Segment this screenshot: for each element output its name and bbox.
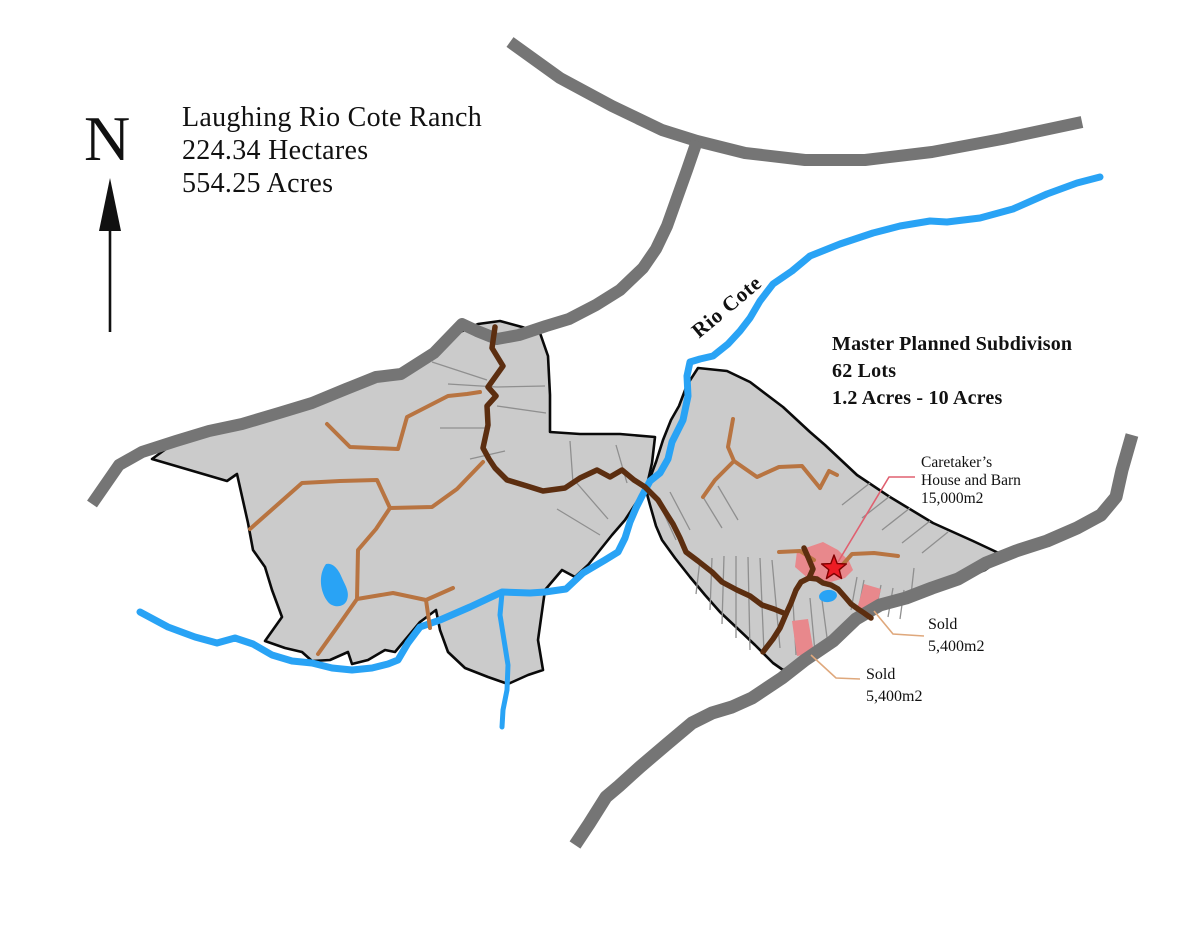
north-arrowhead: [99, 178, 121, 231]
north-arrow: N: [84, 103, 130, 332]
ranch-title-line3: 554.25 Acres: [182, 168, 333, 199]
ranch-title-line1: Laughing Rio Cote Ranch: [182, 102, 482, 133]
highway-north-road: [510, 42, 1082, 160]
caretaker-label-line1: Caretaker’s: [921, 454, 992, 471]
subdivision-line1: Master Planned Subdivison: [832, 333, 1072, 355]
caretaker-label-line3: 15,000m2: [921, 490, 983, 507]
sold-upper-leader-line: [874, 611, 924, 636]
sold-upper-label-line1: Sold: [928, 616, 957, 633]
caretaker-label: Caretaker’s House and Barn 15,000m2: [921, 454, 1021, 507]
caretaker-label-line2: House and Barn: [921, 472, 1021, 489]
sold-lower-label: Sold 5,400m2: [866, 666, 922, 705]
subdivision-block: Master Planned Subdivison 62 Lots 1.2 Ac…: [832, 333, 1072, 409]
ranch-title-block: Laughing Rio Cote Ranch 224.34 Hectares …: [182, 102, 482, 199]
north-label: N: [84, 103, 130, 174]
sold-lower-label-line2: 5,400m2: [866, 688, 922, 705]
subdivision-line3: 1.2 Acres - 10 Acres: [832, 387, 1002, 409]
sold-lower-label-line1: Sold: [866, 666, 895, 683]
ranch-title-line2: 224.34 Hectares: [182, 135, 368, 166]
sold-upper-label: Sold 5,400m2: [928, 616, 984, 655]
subdivision-line2: 62 Lots: [832, 360, 896, 382]
sold-upper-label-line2: 5,400m2: [928, 638, 984, 655]
map-canvas: N Laughing Rio Cote Ranch 224.34 Hectare…: [0, 0, 1200, 927]
